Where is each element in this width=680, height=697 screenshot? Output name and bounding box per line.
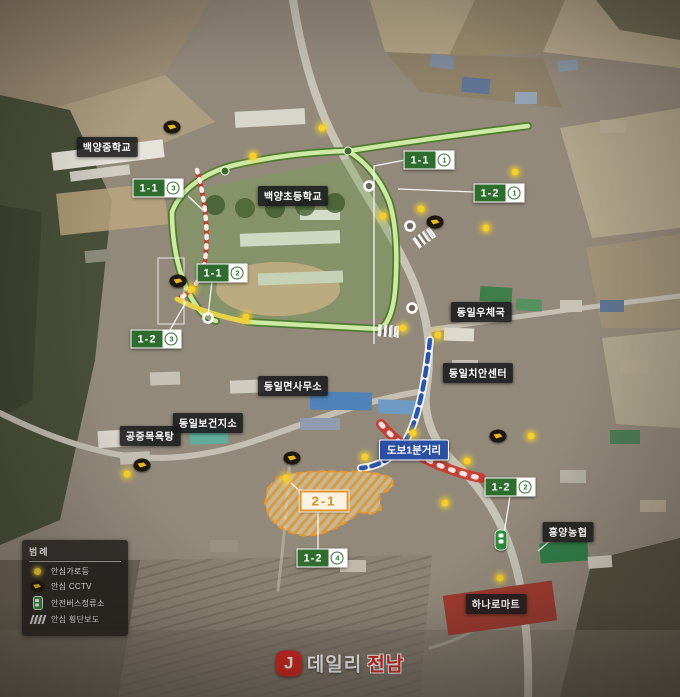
route-badge-1-2-3: 1-23 [131,330,182,349]
legend-item-cctv: 안심 CCTV [29,581,121,592]
route-badge-1-1-3: 1-13 [133,179,184,198]
route-circled-number: 2 [516,479,534,496]
legend-item-label: 안심가로등 [51,566,89,577]
legend-item-crosswalk: 안심 횡단보도 [29,614,121,625]
streetlight-legend-icon [29,568,46,575]
legend: 범례 안심가로등안심 CCTV안전버스정류소안심 횡단보도 [22,540,128,636]
route-badge-1-2-4: 1-24 [297,549,348,568]
route-code: 1-1 [198,265,229,282]
legend-item-label: 안심 CCTV [51,581,92,592]
daily-jeonnam-logo: J 데일리 전남 [276,650,404,677]
route-code: 1-2 [486,479,517,496]
route-code: 1-1 [134,180,165,197]
route-badge-1-1-2: 1-12 [197,264,248,283]
aerial-safety-map: 백양중학교백양초등학교동일우체국동일치안센터동일면사무소동일보건지소공중목욕탕흥… [0,0,680,697]
cctv-legend-icon [29,581,46,592]
legend-item-label: 안전버스정류소 [51,598,105,609]
route-code: 1-2 [298,550,329,567]
route-code: 1-2 [475,185,506,202]
route-code: 1-1 [405,152,436,169]
route-circled-number: 4 [328,550,346,567]
bus-stop-legend-icon [29,596,46,610]
route-circled-number: 2 [228,265,246,282]
logo-text-jeonnam: 전남 [367,650,404,677]
crosswalk-legend-icon [29,615,46,624]
legend-items: 안심가로등안심 CCTV안전버스정류소안심 횡단보도 [29,566,121,625]
legend-item-label: 안심 횡단보도 [51,614,99,625]
legend-item-streetlight: 안심가로등 [29,566,121,577]
route-badge-1-1-1: 1-11 [404,151,455,170]
legend-item-bus-stop: 안전버스정류소 [29,596,121,610]
route-badge-1-2-1: 1-21 [474,184,525,203]
route-circled-number: 3 [164,180,182,197]
route-code: 1-2 [132,331,163,348]
logo-text-daily: 데일리 [307,650,362,677]
route-circled-number: 3 [162,331,180,348]
route-circled-number: 1 [435,152,453,169]
route-circled-number: 1 [505,185,523,202]
logo-mark-icon: J [276,650,302,676]
route-badge-1-2-2: 1-22 [485,478,536,497]
legend-title: 범례 [29,545,121,562]
